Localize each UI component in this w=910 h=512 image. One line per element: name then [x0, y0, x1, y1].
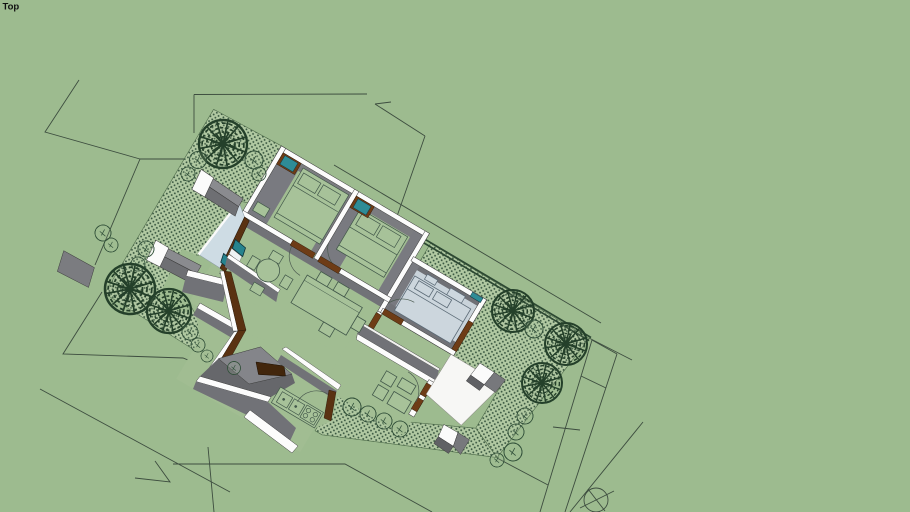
svg-text:Top: Top	[3, 2, 20, 13]
